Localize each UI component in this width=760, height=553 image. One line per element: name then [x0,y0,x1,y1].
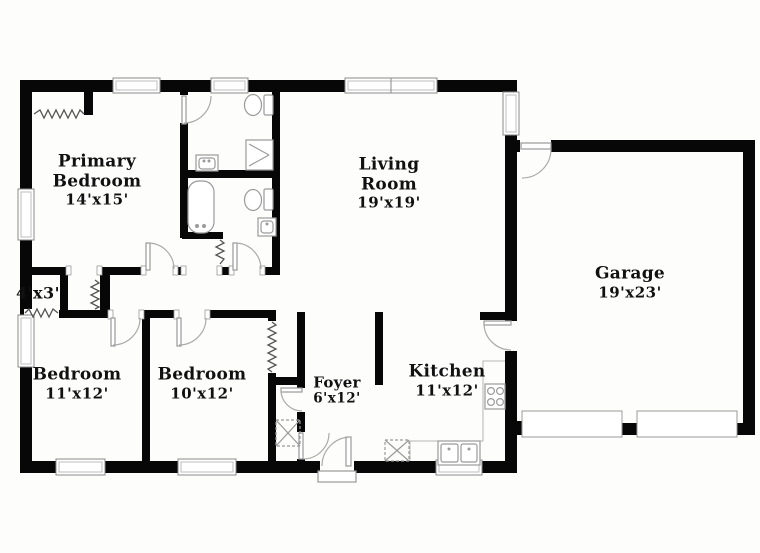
kitchen-sink-icon [438,441,480,465]
closet-rod-zigzag [34,110,84,118]
vanity-sink-icon [196,155,218,171]
door-leaf [182,96,186,124]
door-leaf [233,243,237,270]
door-arc [148,243,174,269]
shower-icon [246,140,273,170]
window [113,78,160,93]
wall [20,80,517,92]
bathtub-icon [188,181,214,233]
stove-icon [485,384,505,409]
door-bathroom-2 [233,243,261,270]
door-leaf [346,437,351,466]
window [18,315,34,367]
room-label-foyer: Foyer 6'x12' [313,374,361,407]
toilet-icon [245,189,274,211]
door-leaf [146,243,150,270]
wall [180,170,280,178]
window [211,78,248,93]
room-label-closet: 4'x3' [16,285,60,304]
door-arc [179,318,206,345]
garage-door [522,411,622,437]
closet-rod-zigzags [25,110,276,372]
appliance-x-box [385,440,409,461]
wall [480,312,510,320]
door-leaf [521,143,551,149]
window [178,459,236,475]
door-arc [235,243,261,269]
room-label-garage: Garage 19'x23' [595,264,665,301]
door-bathroom-1 [182,96,211,124]
toilet-icon [245,95,274,116]
window [18,189,34,240]
door-arc [303,433,329,459]
door-bedroom-1 [111,318,140,346]
doors [111,96,551,482]
door-leaf [177,318,181,346]
bathroom-sink-icon [258,218,276,236]
door-arc [113,318,140,345]
door-leaf [281,388,302,392]
wall [272,92,280,272]
wall [743,140,755,435]
room-label-bedroom-1: Bedroom 11'x12' [33,365,122,402]
door-bedroom-2 [177,318,206,346]
wall [268,377,305,385]
front-door-threshold [318,471,356,482]
door-primary-bedroom [146,243,174,270]
room-label-kitchen: Kitchen 11'x12' [408,362,485,399]
room-label-bedroom-2: Bedroom 10'x12' [158,365,247,402]
wall [84,92,93,115]
door-leaf [111,318,115,346]
wall [505,80,517,461]
wall [142,317,150,461]
garage-side-door [521,143,551,178]
door-leaf [484,321,511,325]
wall [20,80,32,473]
fixtures [188,95,505,466]
wall [375,312,383,385]
garage-door [637,411,737,437]
door-arc [522,149,551,178]
window [56,459,105,475]
room-label-living-room: Living Room 19'x19' [354,156,424,213]
window [503,92,519,135]
floor-plan: Primary Bedroom 14'x15' 4'x3' Living Roo… [0,0,760,553]
closet-rod-zigzag [216,240,224,264]
closet-rod-zigzag [91,280,99,309]
front-door [318,437,356,482]
room-label-primary-bedroom: Primary Bedroom 14'x15' [49,153,145,210]
